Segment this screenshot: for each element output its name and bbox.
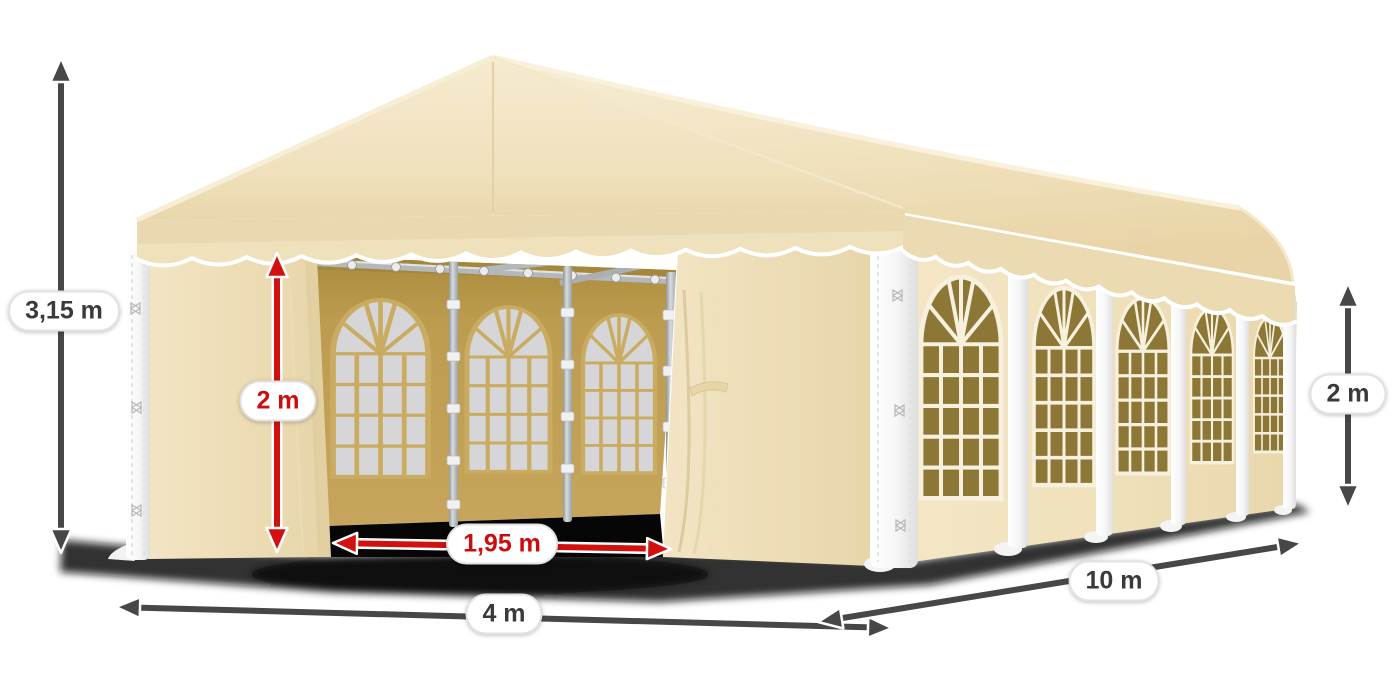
tent-interior — [303, 250, 678, 558]
tent-dimension-diagram: 3,15 m 2 m 1,95 m 4 m 10 m 2 m — [0, 0, 1400, 700]
interior-window-1 — [333, 300, 428, 477]
total-height-label: 3,15 m — [8, 291, 120, 332]
side-wall-height-label: 2 m — [1309, 374, 1386, 415]
side-window-1 — [921, 277, 1001, 498]
tent-front — [108, 226, 918, 572]
front-width-label: 4 m — [465, 594, 542, 635]
front-right-corner-post — [864, 226, 918, 572]
entrance-height-label: 2 m — [239, 381, 316, 422]
side-window-3 — [1117, 298, 1169, 474]
interior-window-2 — [467, 307, 550, 472]
tent-illustration — [0, 0, 1400, 700]
interior-window-3 — [583, 315, 655, 473]
side-window-5 — [1254, 317, 1286, 452]
side-window-4 — [1191, 308, 1233, 463]
side-length-label: 10 m — [1069, 561, 1160, 602]
entrance-width-label: 1,95 m — [446, 524, 558, 565]
front-right-panel — [663, 248, 872, 566]
side-window-2 — [1034, 288, 1094, 485]
